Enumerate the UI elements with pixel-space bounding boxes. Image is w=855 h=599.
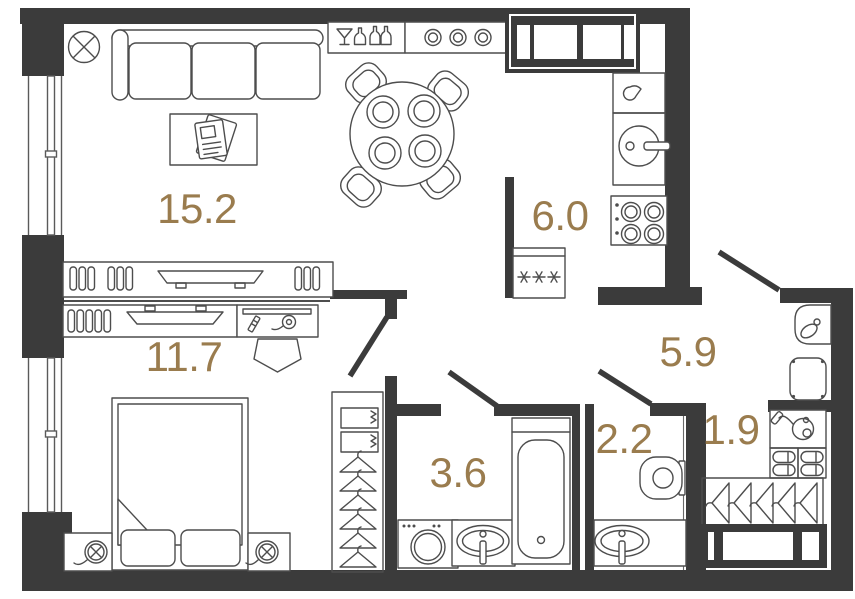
stove-icon <box>611 196 667 245</box>
bar-stools-icon <box>405 22 508 53</box>
slippers-icon <box>770 448 826 478</box>
bedroom-door-icon <box>350 317 387 376</box>
desk-chair-icon <box>254 339 301 372</box>
window-living-room <box>29 76 62 235</box>
nightstand-lamp-icon <box>64 533 112 571</box>
tv-console-icon <box>63 262 333 297</box>
floor-plan: 15.2 6.0 11.7 5.9 3.6 2.2 1.9 <box>0 0 855 599</box>
floor-plan-drawing <box>0 0 855 599</box>
kettle-icon <box>624 86 641 100</box>
bathtub-icon <box>512 418 570 564</box>
bedroom-area-label: 11.7 <box>146 336 223 378</box>
fridge-icon <box>513 248 565 298</box>
storage-cabinet-icon <box>700 524 827 568</box>
storage-hangers-icon <box>702 478 823 528</box>
entry-door-icon <box>719 252 779 290</box>
wc-door-icon <box>599 371 651 404</box>
kitchen-area-label: 6.0 <box>532 195 589 237</box>
desk-icon <box>237 305 318 337</box>
wc-area-label: 2.2 <box>596 418 653 460</box>
living-room-area-label: 15.2 <box>157 188 237 230</box>
sink-icon <box>594 520 686 566</box>
built-in-wardrobe-icon <box>505 10 640 73</box>
storage-area-label: 1.9 <box>703 409 760 451</box>
shoe-bench-icon <box>795 305 831 344</box>
vacuum-cleaner-icon <box>770 410 826 448</box>
sofa-icon <box>112 30 323 100</box>
dining-table-icon <box>336 58 473 211</box>
wardrobe-shelves-icon <box>332 392 383 572</box>
pouf-icon <box>790 358 826 400</box>
window-bedroom <box>29 358 62 512</box>
bathroom-area-label: 3.6 <box>430 452 487 494</box>
hanger-icon <box>340 451 376 567</box>
hallway-area-label: 5.9 <box>660 331 717 373</box>
double-bed-icon <box>112 398 248 570</box>
kitchen-sink-icon <box>619 126 670 166</box>
bar-counter-icon <box>328 22 405 53</box>
coffee-table-magazines-icon <box>170 114 257 165</box>
bathroom-door-icon <box>449 372 497 406</box>
nightstand-lamp-icon <box>246 533 290 571</box>
sink-icon <box>452 520 515 566</box>
washing-machine-icon <box>398 520 458 568</box>
ceiling-light-icon <box>69 32 100 63</box>
